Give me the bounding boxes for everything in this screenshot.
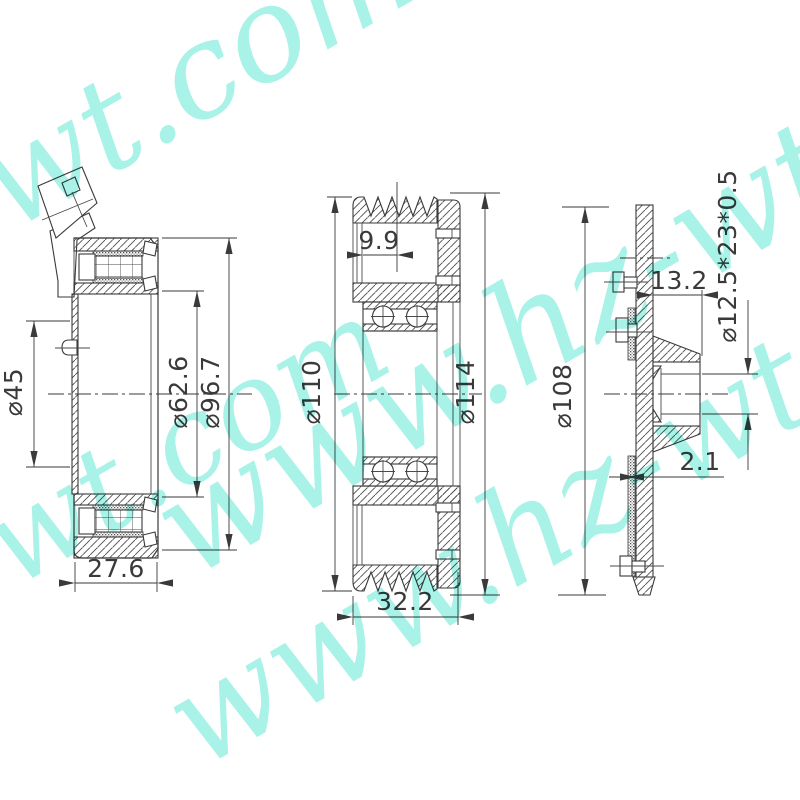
- spring-clip: [143, 276, 157, 291]
- watermark-layer: www.hz-wt.com www.hz-wt.com www.hz-wt.co…: [0, 0, 800, 800]
- technical-drawing: ⌀45 ⌀62.6 ⌀96.7 27.6: [0, 0, 800, 800]
- coil-block-top: [74, 238, 158, 294]
- coil-winding: [95, 256, 142, 278]
- dim-label-groove-offset: 9.9: [358, 226, 399, 255]
- mount-stud: [62, 340, 77, 355]
- spring-clip: [143, 241, 157, 256]
- dim-label-bore: ⌀45: [0, 368, 28, 416]
- belt-grooves-top: [353, 197, 437, 223]
- plate-tip: [633, 577, 655, 595]
- bobbin-flange: [79, 254, 95, 280]
